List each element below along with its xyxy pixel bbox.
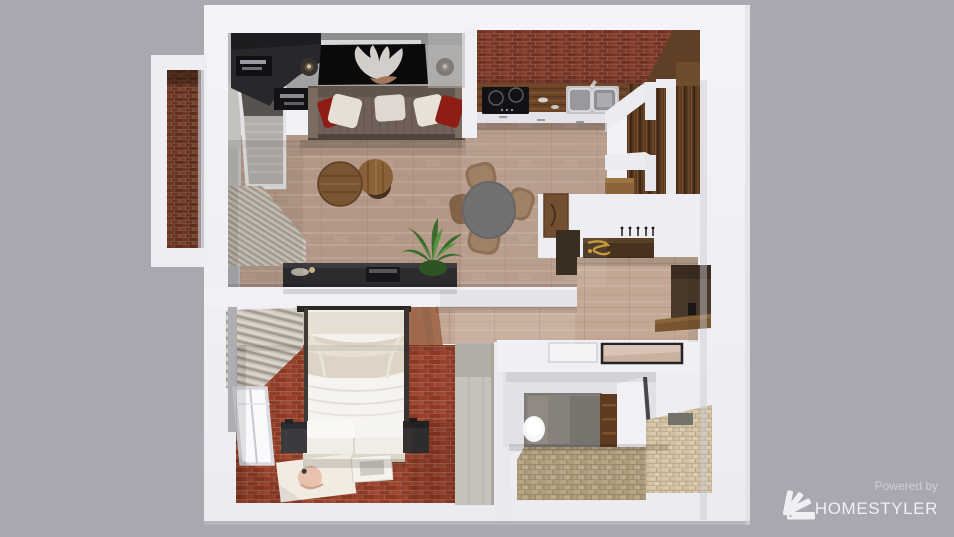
svg-text:Powered by: Powered by [875, 479, 938, 493]
svg-text:HOMESTYLER: HOMESTYLER [815, 499, 938, 518]
